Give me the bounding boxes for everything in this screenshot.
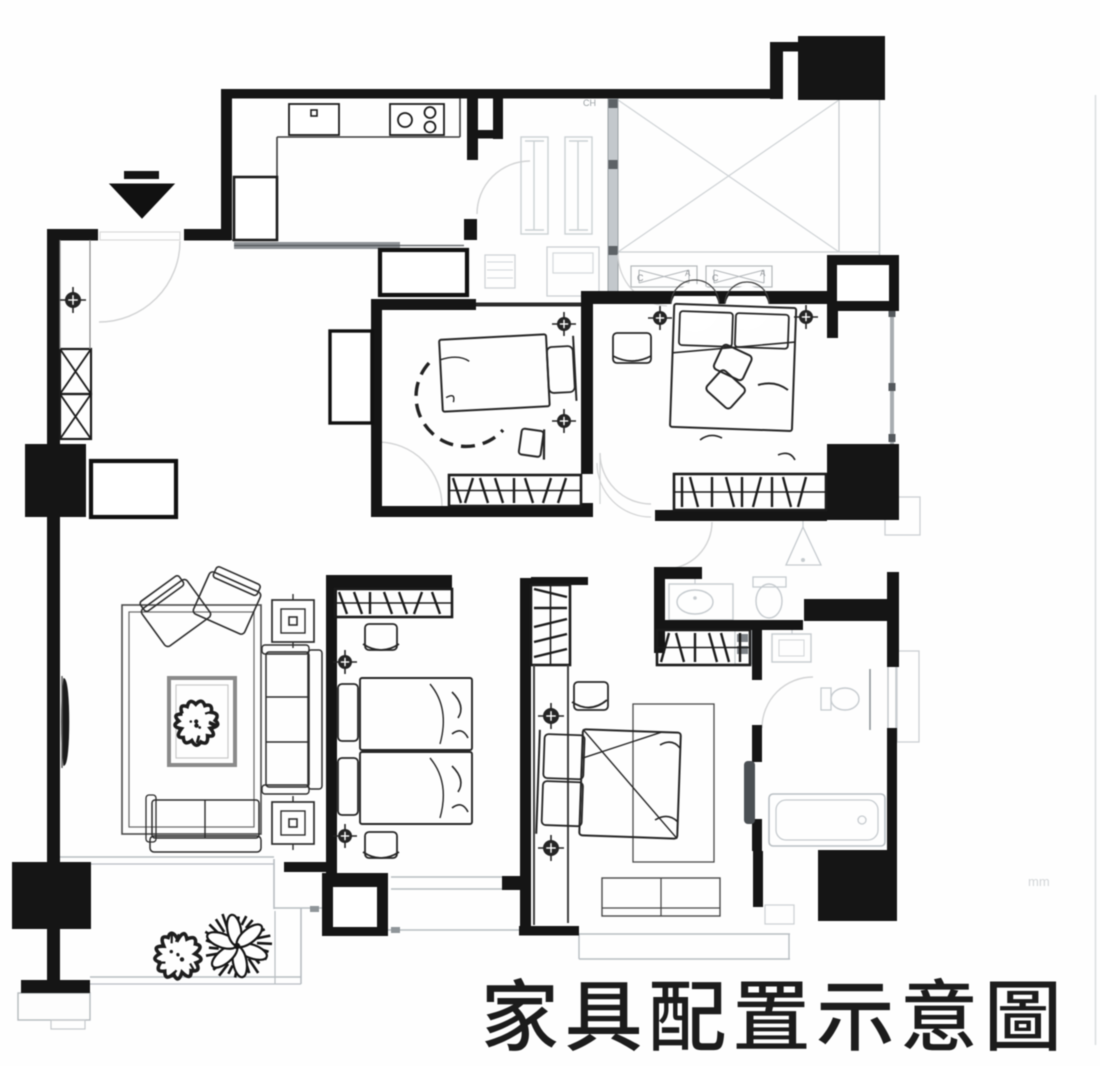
svg-text:CH: CH [583, 98, 596, 108]
svg-text:A: A [760, 269, 766, 278]
svg-text:mm: mm [1028, 874, 1050, 889]
svg-text:C: C [637, 273, 644, 283]
svg-text:A: A [685, 269, 691, 278]
svg-text:C: C [712, 273, 719, 283]
